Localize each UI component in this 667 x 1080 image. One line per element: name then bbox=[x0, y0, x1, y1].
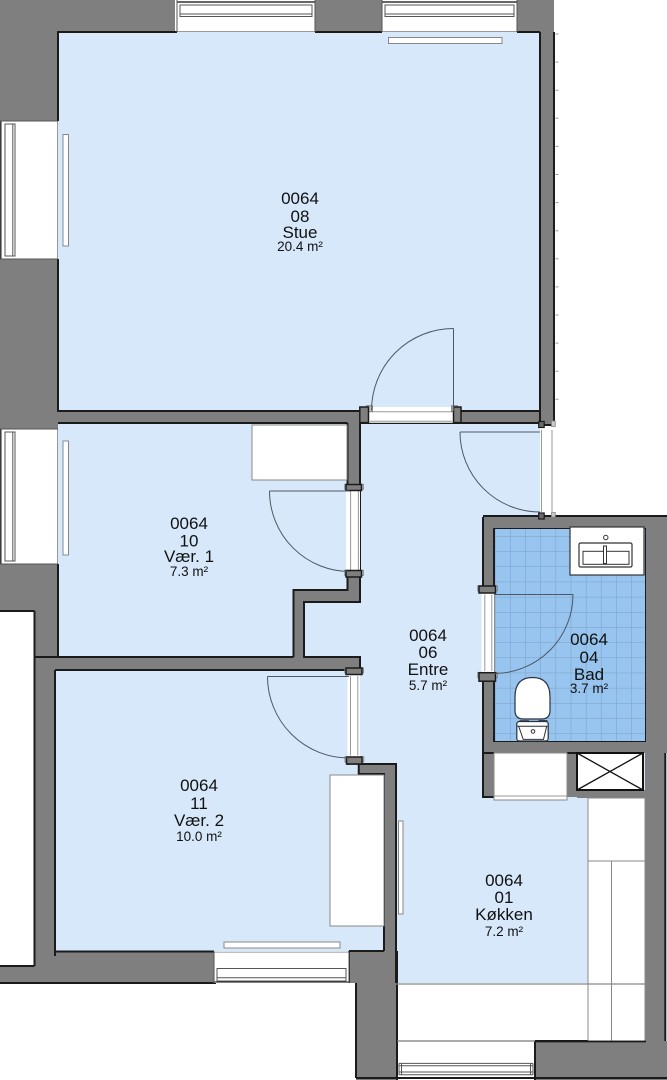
svg-text:0064: 0064 bbox=[170, 514, 208, 533]
svg-text:7.3 m²: 7.3 m² bbox=[170, 564, 209, 579]
svg-text:Entre: Entre bbox=[408, 660, 449, 679]
svg-text:5.7 m²: 5.7 m² bbox=[409, 678, 448, 693]
svg-text:Køkken: Køkken bbox=[475, 905, 533, 924]
svg-text:Vær. 2: Vær. 2 bbox=[174, 811, 224, 830]
svg-text:0064: 0064 bbox=[570, 630, 608, 649]
svg-text:0064: 0064 bbox=[180, 776, 218, 795]
svg-text:7.2 m²: 7.2 m² bbox=[485, 924, 524, 939]
svg-text:20.4 m²: 20.4 m² bbox=[277, 239, 323, 254]
svg-text:0064: 0064 bbox=[281, 189, 319, 208]
svg-text:3.7 m²: 3.7 m² bbox=[570, 681, 609, 696]
svg-text:10.0 m²: 10.0 m² bbox=[176, 829, 222, 844]
